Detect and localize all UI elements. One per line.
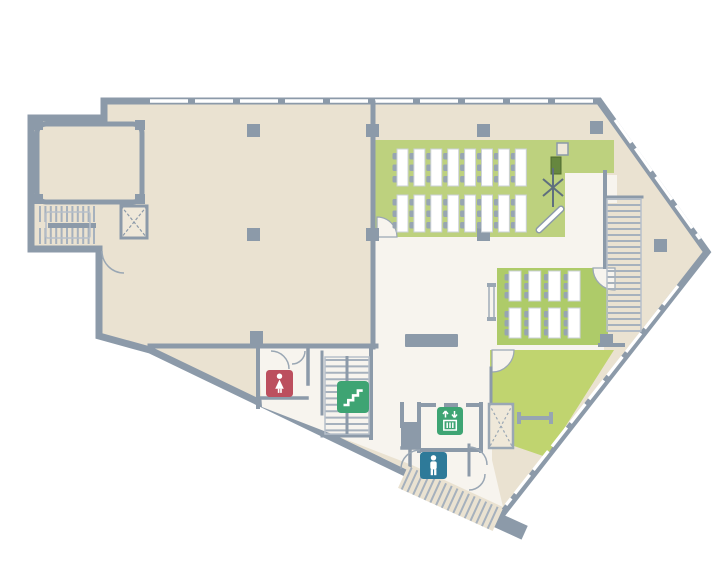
desk (498, 149, 509, 186)
desk (397, 149, 408, 186)
column (135, 194, 145, 204)
column (33, 120, 43, 130)
stair-landing-divider (48, 223, 96, 228)
women-restroom-icon (266, 370, 293, 397)
desk (509, 271, 521, 301)
column (477, 124, 490, 137)
elevator-icon (437, 407, 463, 435)
desk (509, 308, 521, 338)
hall-floor-right-strip (565, 173, 605, 268)
hall-bench (405, 334, 458, 347)
column (366, 228, 379, 241)
desk (515, 149, 526, 186)
column (33, 194, 43, 204)
elevator-shaft (489, 404, 513, 448)
desk (529, 271, 541, 301)
floor-plan (0, 0, 713, 570)
column (600, 334, 613, 347)
desk (515, 195, 526, 232)
desk (548, 308, 560, 338)
desk (568, 271, 580, 301)
column (247, 228, 260, 241)
desk (448, 195, 459, 232)
desk (482, 195, 493, 232)
stairs-icon (337, 381, 369, 413)
desk (465, 149, 476, 186)
column (250, 331, 263, 344)
column (247, 124, 260, 137)
wall-screen (487, 283, 496, 321)
service-shaft-annex (121, 206, 147, 238)
desk (529, 308, 541, 338)
desk (568, 308, 580, 338)
desk (431, 149, 442, 186)
desk (431, 195, 442, 232)
rooms-floor-lower-left (258, 346, 503, 507)
lectern-box (557, 143, 568, 155)
desk (414, 149, 425, 186)
column (135, 120, 145, 130)
column (590, 121, 603, 134)
desk (397, 195, 408, 232)
men-restroom-icon (420, 452, 447, 479)
desk (482, 149, 493, 186)
desk (498, 195, 509, 232)
desk (448, 149, 459, 186)
column (654, 239, 667, 252)
desk (548, 271, 560, 301)
desk (465, 195, 476, 232)
floor-plan-canvas (0, 0, 713, 570)
column (366, 124, 379, 137)
desk (414, 195, 425, 232)
